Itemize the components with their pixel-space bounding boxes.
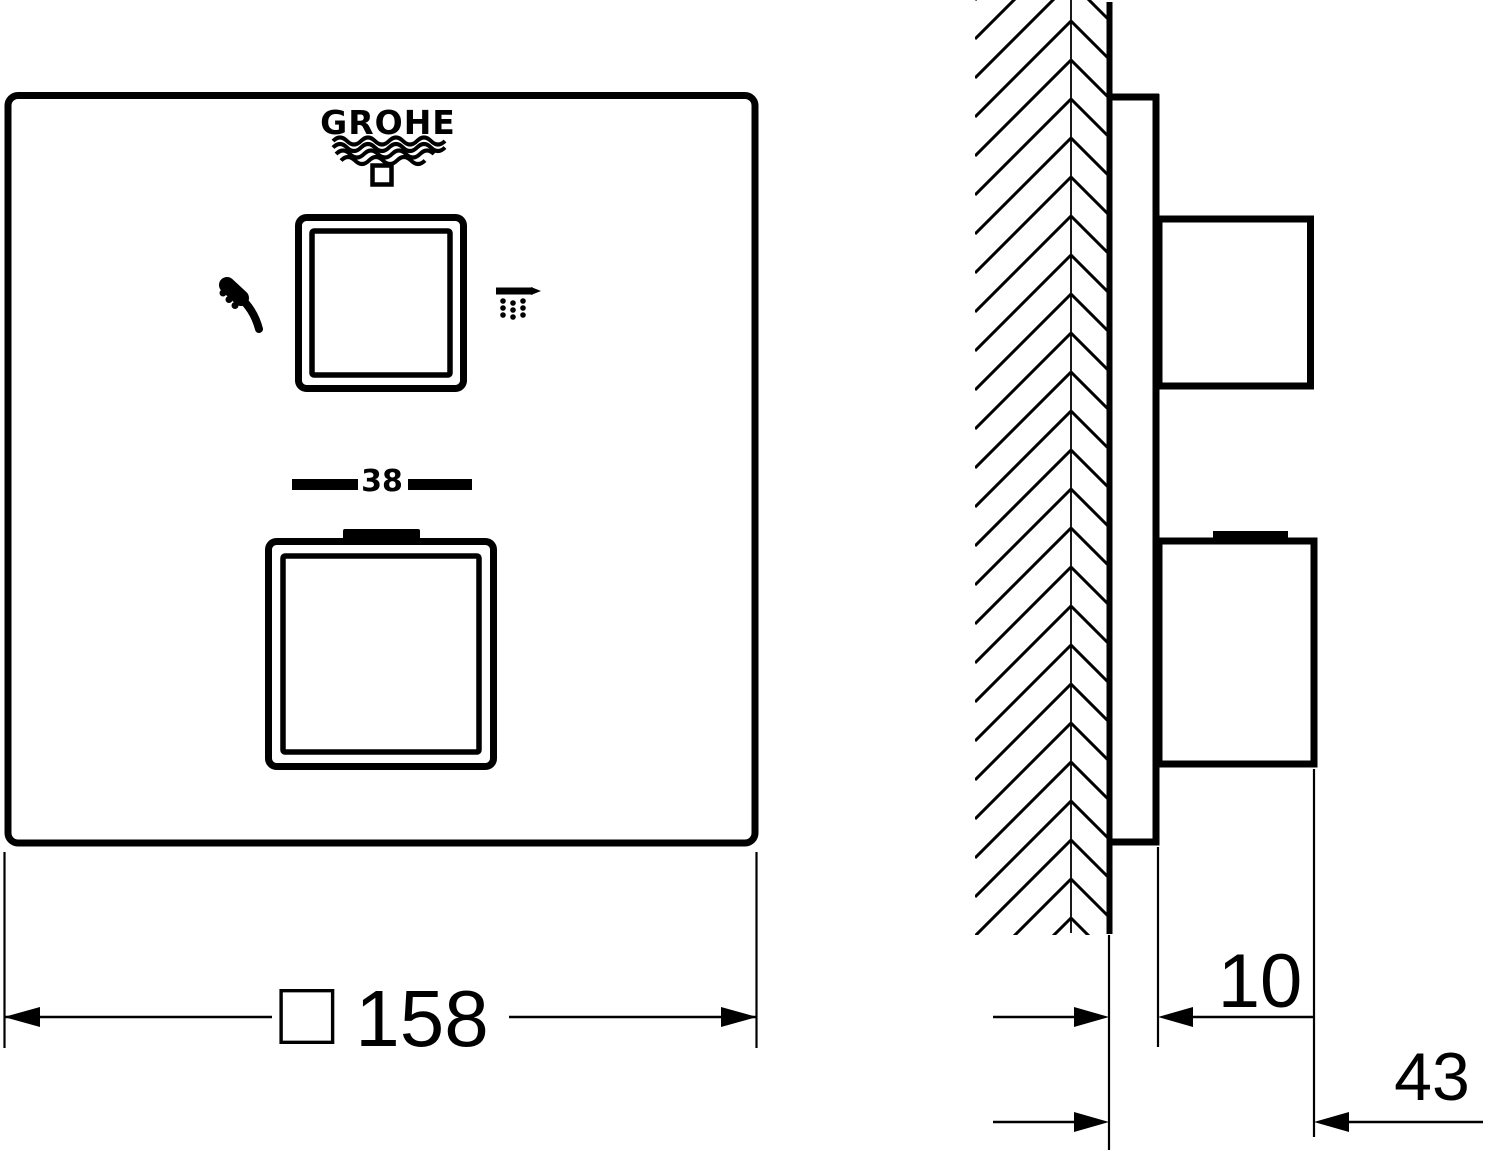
arrowhead-wall	[1074, 1007, 1109, 1027]
total-depth-value: 43	[1394, 1039, 1470, 1115]
temp-scale-left-bar	[292, 479, 358, 490]
front-view: GROHE	[8, 96, 755, 844]
temp-scale-right-bar	[408, 479, 472, 490]
technical-drawing: GROHE	[0, 0, 1500, 1152]
arrowhead-plate	[1158, 1007, 1193, 1027]
diverter-knob-side	[1159, 219, 1311, 386]
thermostat-knob-side	[1159, 541, 1314, 764]
dimension-front-width: □ 158	[4, 852, 757, 1064]
faceplate-side	[1110, 94, 1159, 846]
temperature-stop-label: 38	[361, 464, 403, 499]
thermostat-knob-inner	[283, 556, 479, 752]
wall-hatching	[975, 0, 1108, 935]
diverter-knob-front	[299, 218, 464, 389]
square-button-icon	[373, 166, 392, 185]
front-width-value: 158	[355, 974, 488, 1063]
square-dimension-symbol: □	[279, 962, 335, 1064]
drawing-canvas: GROHE	[0, 0, 1500, 1152]
diverter-knob-inner	[312, 231, 450, 375]
thermostat-knob-front	[269, 529, 494, 767]
arrowhead-left	[4, 1007, 40, 1027]
side-view	[975, 0, 1314, 935]
arrowhead-right	[721, 1007, 757, 1027]
arrowhead-knob	[1314, 1112, 1349, 1132]
arrowhead-wall-2	[1074, 1112, 1109, 1132]
plate-depth-value: 10	[1218, 939, 1303, 1024]
